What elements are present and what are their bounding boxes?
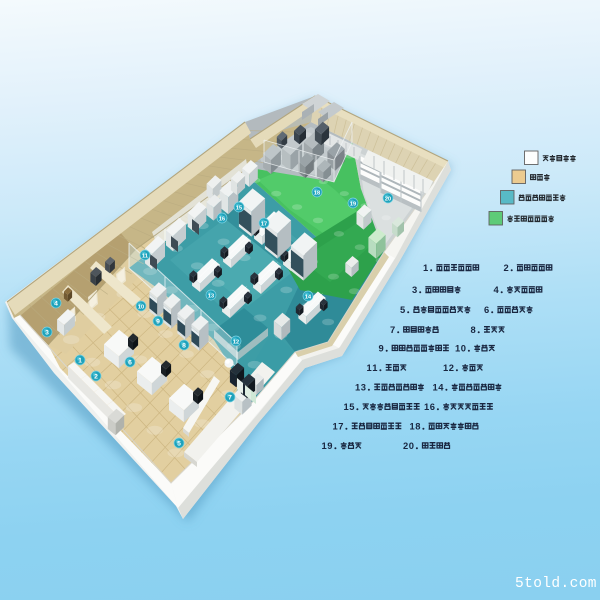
svg-text:9: 9 [379, 343, 384, 354]
svg-text:7: 7 [228, 395, 232, 402]
svg-text:1: 1 [443, 362, 448, 373]
svg-text:2: 2 [504, 262, 509, 273]
svg-text:2: 2 [403, 440, 408, 451]
svg-text:20: 20 [385, 197, 391, 203]
svg-text:4: 4 [494, 284, 500, 295]
svg-text:1: 1 [355, 382, 360, 393]
svg-text:1: 1 [455, 343, 460, 354]
svg-text:14: 14 [305, 295, 312, 301]
svg-text:6: 6 [484, 304, 489, 315]
svg-text:15: 15 [236, 206, 242, 212]
svg-text:17: 17 [261, 222, 267, 228]
svg-text:7: 7 [338, 421, 343, 432]
svg-text:7: 7 [390, 324, 395, 335]
svg-text:5told.com: 5told.com [515, 576, 597, 592]
svg-text:1: 1 [333, 421, 338, 432]
svg-text:4: 4 [438, 382, 444, 393]
svg-text:2: 2 [94, 374, 98, 381]
svg-text:11: 11 [142, 254, 148, 260]
svg-text:19: 19 [350, 202, 356, 208]
svg-text:5: 5 [400, 304, 405, 315]
svg-text:6: 6 [430, 401, 435, 412]
svg-text:2: 2 [449, 362, 454, 373]
svg-text:1: 1 [322, 440, 327, 451]
svg-text:1: 1 [344, 401, 349, 412]
svg-text:5: 5 [349, 401, 354, 412]
svg-text:8: 8 [471, 324, 476, 335]
svg-text:9: 9 [156, 319, 160, 326]
svg-text:1: 1 [410, 421, 415, 432]
svg-text:13: 13 [208, 294, 214, 300]
svg-text:3: 3 [361, 382, 366, 393]
svg-text:1: 1 [433, 382, 438, 393]
svg-text:8: 8 [415, 421, 420, 432]
svg-text:1: 1 [372, 362, 377, 373]
svg-text:16: 16 [219, 217, 225, 223]
svg-text:5: 5 [177, 441, 181, 448]
svg-text:12: 12 [233, 340, 239, 346]
svg-text:0: 0 [409, 440, 414, 451]
svg-text:9: 9 [327, 440, 332, 451]
svg-text:18: 18 [314, 191, 320, 197]
svg-text:0: 0 [461, 343, 466, 354]
svg-text:1: 1 [423, 262, 428, 273]
svg-text:1: 1 [424, 401, 429, 412]
svg-text:8: 8 [182, 343, 186, 350]
svg-text:1: 1 [367, 362, 372, 373]
svg-text:3: 3 [45, 330, 49, 337]
svg-text:3: 3 [412, 284, 417, 295]
svg-text:10: 10 [138, 305, 144, 311]
svg-text:6: 6 [128, 360, 132, 367]
svg-text:4: 4 [54, 301, 58, 308]
svg-text:1: 1 [78, 358, 82, 365]
